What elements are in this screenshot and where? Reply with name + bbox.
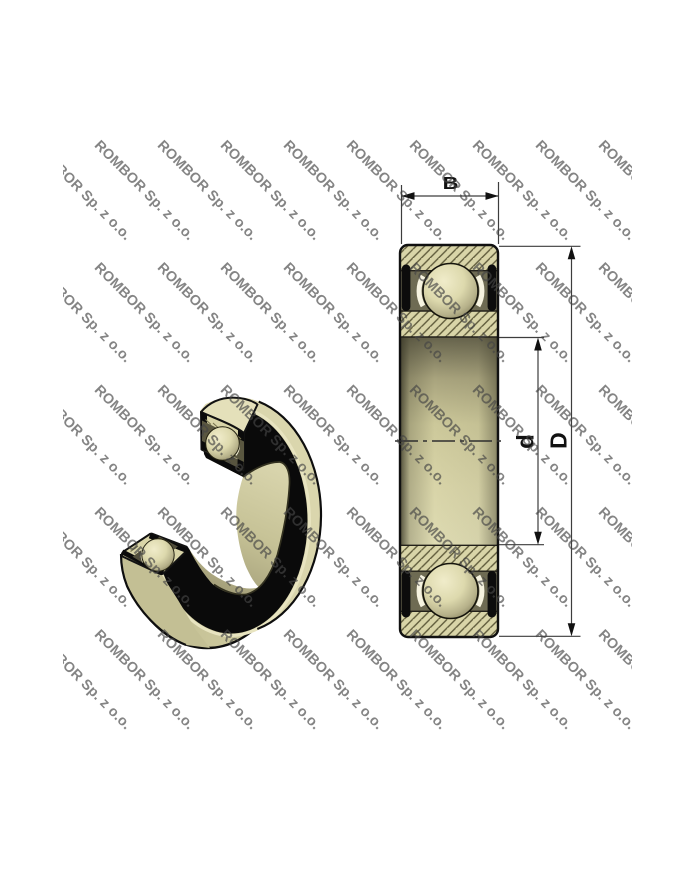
svg-text:D: D	[546, 432, 572, 449]
